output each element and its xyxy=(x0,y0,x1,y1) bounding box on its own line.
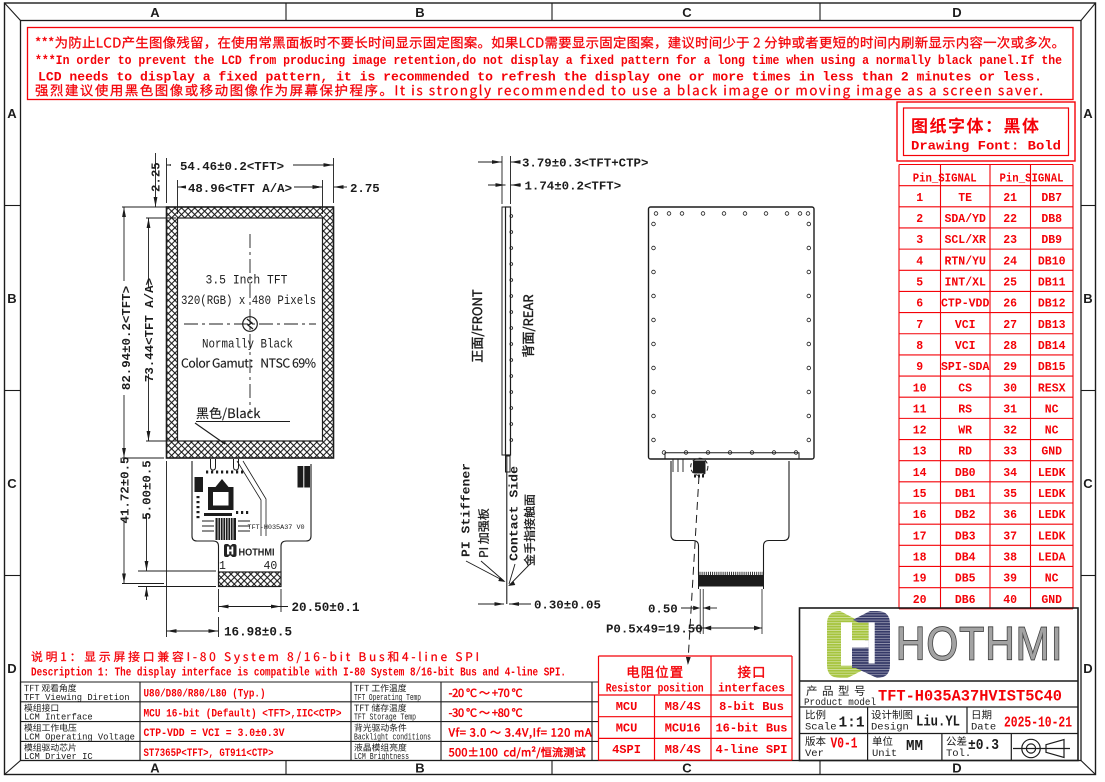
svg-text:26: 26 xyxy=(1003,298,1017,311)
svg-text:32: 32 xyxy=(1003,425,1017,438)
svg-text:16.98±0.5: 16.98±0.5 xyxy=(224,626,292,640)
svg-text:DB1: DB1 xyxy=(955,488,976,501)
svg-text:8: 8 xyxy=(916,340,923,353)
svg-text:A: A xyxy=(150,761,160,776)
svg-text:6: 6 xyxy=(916,298,923,311)
svg-text:22: 22 xyxy=(1003,213,1017,226)
svg-text:Resistor position: Resistor position xyxy=(606,682,704,696)
svg-text:TE: TE xyxy=(958,192,972,205)
svg-text:RS: RS xyxy=(958,403,972,416)
svg-text:17: 17 xyxy=(913,530,927,543)
svg-text:HOTHMI: HOTHMI xyxy=(239,547,275,559)
svg-text:NC: NC xyxy=(1045,403,1059,416)
svg-text:Ver: Ver xyxy=(805,748,824,760)
svg-text:4-line SPI: 4-line SPI xyxy=(715,743,787,757)
svg-text:TFT Viewing Diretion: TFT Viewing Diretion xyxy=(24,693,130,703)
svg-text:M8/4S: M8/4S xyxy=(665,700,701,714)
svg-text:LEDA: LEDA xyxy=(1038,552,1066,565)
svg-text:DB11: DB11 xyxy=(1038,276,1066,289)
svg-text:DB5: DB5 xyxy=(955,573,976,586)
svg-text:Normally Black: Normally Black xyxy=(202,337,293,352)
svg-text:39: 39 xyxy=(1003,573,1017,586)
svg-text:3.5 Inch TFT: 3.5 Inch TFT xyxy=(206,273,288,288)
svg-text:RESX: RESX xyxy=(1038,382,1066,395)
svg-text:Drawing Font: Bold: Drawing Font: Bold xyxy=(911,139,1061,154)
svg-text:WR: WR xyxy=(958,425,972,438)
svg-text:GND: GND xyxy=(1041,594,1062,607)
svg-text:MM: MM xyxy=(906,739,923,755)
svg-text:±0.3: ±0.3 xyxy=(968,737,999,754)
svg-text:RD: RD xyxy=(958,446,972,459)
svg-text:P0.5x49=19.50: P0.5x49=19.50 xyxy=(606,623,703,637)
svg-text:DB2: DB2 xyxy=(955,509,976,522)
svg-text:34: 34 xyxy=(1003,467,1017,480)
svg-text:MCU: MCU xyxy=(616,700,638,714)
svg-text:2025-10-21: 2025-10-21 xyxy=(1004,716,1072,732)
svg-text:Backlight conditions: Backlight conditions xyxy=(354,732,431,742)
svg-text:LEDK: LEDK xyxy=(1038,509,1066,522)
svg-text:21: 21 xyxy=(1003,192,1017,205)
svg-text:33: 33 xyxy=(1003,446,1017,459)
svg-text:3: 3 xyxy=(916,234,923,247)
svg-text:interfaces: interfaces xyxy=(718,682,785,696)
svg-text:C: C xyxy=(7,476,17,491)
svg-text:35: 35 xyxy=(1003,488,1017,501)
svg-text:DB15: DB15 xyxy=(1038,361,1066,374)
svg-text:M8/4S: M8/4S xyxy=(665,743,701,757)
svg-text:40: 40 xyxy=(1003,594,1017,607)
svg-text:5: 5 xyxy=(916,276,923,289)
svg-text:DB10: DB10 xyxy=(1038,255,1066,268)
svg-text:29: 29 xyxy=(1003,361,1017,374)
svg-text:73.44<TFT A/A>: 73.44<TFT A/A> xyxy=(143,278,157,382)
svg-text:NC: NC xyxy=(1045,573,1059,586)
svg-text:13: 13 xyxy=(913,446,927,459)
svg-text:RTN/YU: RTN/YU xyxy=(944,255,986,268)
svg-text:Liu.YL: Liu.YL xyxy=(916,715,960,731)
svg-text:11: 11 xyxy=(913,403,927,416)
svg-text:40: 40 xyxy=(264,560,278,573)
svg-text:82.94±0.2<TFT>: 82.94±0.2<TFT> xyxy=(120,286,134,390)
svg-text:ST7365P<TFT>, GT911<CTP>: ST7365P<TFT>, GT911<CTP> xyxy=(144,748,274,760)
svg-text:Date: Date xyxy=(971,722,996,734)
svg-text:20.50±0.1: 20.50±0.1 xyxy=(292,601,360,615)
svg-text:9: 9 xyxy=(916,361,923,374)
svg-text:D: D xyxy=(952,5,961,20)
svg-text:36: 36 xyxy=(1003,509,1017,522)
svg-text:LEDK: LEDK xyxy=(1038,488,1066,501)
svg-text:48.96<TFT A/A>: 48.96<TFT A/A> xyxy=(188,182,292,196)
svg-text:D: D xyxy=(7,661,16,676)
svg-text:5.00±0.5: 5.00±0.5 xyxy=(141,460,155,520)
svg-text:4SPI: 4SPI xyxy=(612,743,641,757)
svg-text:12: 12 xyxy=(913,425,927,438)
svg-text:C: C xyxy=(1083,476,1093,491)
svg-text:D: D xyxy=(1083,661,1092,676)
svg-text:25: 25 xyxy=(1003,276,1017,289)
svg-text:B: B xyxy=(415,5,424,20)
svg-text:A: A xyxy=(7,106,17,121)
svg-text:A: A xyxy=(1083,106,1093,121)
svg-text:0.30±0.05: 0.30±0.05 xyxy=(534,598,601,612)
svg-text:LCM Interface: LCM Interface xyxy=(24,713,93,723)
svg-text:INT/XL: INT/XL xyxy=(944,276,986,289)
svg-text:LEDK: LEDK xyxy=(1038,467,1066,480)
svg-text:DB4: DB4 xyxy=(955,552,976,565)
svg-text:Product model: Product model xyxy=(804,697,876,709)
svg-text:1.74±0.2<TFT>: 1.74±0.2<TFT> xyxy=(525,180,622,194)
svg-text:SDA/YD: SDA/YD xyxy=(944,213,986,226)
svg-text:24: 24 xyxy=(1003,255,1017,268)
svg-text:2: 2 xyxy=(916,213,923,226)
svg-text:3.79±0.3<TFT+CTP>: 3.79±0.3<TFT+CTP> xyxy=(522,157,648,171)
svg-text:DB12: DB12 xyxy=(1038,298,1066,311)
svg-text:DB7: DB7 xyxy=(1041,192,1062,205)
svg-text:LCD needs to display a fixed p: LCD needs to display a fixed pattern, it… xyxy=(38,71,1042,85)
svg-text:19: 19 xyxy=(913,573,927,586)
svg-text:Contact Side: Contact Side xyxy=(508,466,522,561)
svg-text:10: 10 xyxy=(913,382,927,395)
svg-text:MCU: MCU xyxy=(616,722,638,736)
svg-text:37: 37 xyxy=(1003,530,1017,543)
svg-text:CTP-VDD = VCI = 3.0±0.3V: CTP-VDD = VCI = 3.0±0.3V xyxy=(144,728,285,740)
svg-text:DB13: DB13 xyxy=(1038,319,1066,332)
svg-text:41.72±0.5: 41.72±0.5 xyxy=(119,457,133,524)
svg-text:U80/D80/R80/L80 (Typ.): U80/D80/R80/L80 (Typ.) xyxy=(144,689,266,701)
svg-text:1:1: 1:1 xyxy=(838,716,864,732)
svg-text:Description 1: The display int: Description 1: The display interface is … xyxy=(31,667,566,680)
svg-text:38: 38 xyxy=(1003,552,1017,565)
svg-text:LCM Driver IC: LCM Driver IC xyxy=(24,752,93,762)
svg-text:LCM Operating Voltage: LCM Operating Voltage xyxy=(24,732,135,742)
svg-text:2.25: 2.25 xyxy=(150,162,164,192)
svg-text:DB14: DB14 xyxy=(1038,340,1066,353)
svg-text:LCM Brightness: LCM Brightness xyxy=(354,752,409,762)
svg-text:SCL/XR: SCL/XR xyxy=(944,234,986,247)
svg-text:DB9: DB9 xyxy=(1041,234,1062,247)
svg-text:20: 20 xyxy=(913,594,927,607)
svg-text:4: 4 xyxy=(916,255,923,268)
svg-text:DB0: DB0 xyxy=(955,467,976,480)
svg-text:320(RGB) x 480 Pixels: 320(RGB) x 480 Pixels xyxy=(181,293,316,308)
svg-text:15: 15 xyxy=(913,488,927,501)
svg-text:1: 1 xyxy=(916,192,923,205)
svg-text:Unit: Unit xyxy=(872,748,897,760)
svg-text:***In order to prevent the LCD: ***In order to prevent the LCD from prod… xyxy=(35,54,1062,68)
svg-text:C: C xyxy=(682,5,692,20)
svg-text:DB6: DB6 xyxy=(955,594,976,607)
svg-text:V0-1: V0-1 xyxy=(831,737,858,753)
svg-text:14: 14 xyxy=(913,467,927,480)
svg-text:54.46±0.2<TFT>: 54.46±0.2<TFT> xyxy=(180,160,284,174)
svg-text:MCU 16-bit (Default) <TFT>,IIC: MCU 16-bit (Default) <TFT>,IIC<CTP> xyxy=(144,708,342,720)
svg-text:TFT-H035A37HVIST5C40: TFT-H035A37HVIST5C40 xyxy=(878,688,1062,706)
svg-text:31: 31 xyxy=(1003,403,1017,416)
svg-text:TFT Storage Temp: TFT Storage Temp xyxy=(354,713,416,723)
svg-text:CTP-VDD: CTP-VDD xyxy=(941,298,989,311)
svg-text:TFT Operating Temp: TFT Operating Temp xyxy=(354,693,421,703)
svg-text:Pin_SIGNAL: Pin_SIGNAL xyxy=(1000,173,1064,186)
svg-text:B: B xyxy=(7,291,16,306)
svg-text:C: C xyxy=(682,761,692,776)
svg-text:CS: CS xyxy=(958,382,972,395)
svg-text:TFT-H035A37 V0: TFT-H035A37 V0 xyxy=(248,524,305,532)
svg-text:28: 28 xyxy=(1003,340,1017,353)
svg-text:DB8: DB8 xyxy=(1041,213,1062,226)
svg-text:DB3: DB3 xyxy=(955,530,976,543)
svg-text:8-bit Bus: 8-bit Bus xyxy=(719,700,784,714)
svg-text:NC: NC xyxy=(1045,425,1059,438)
svg-text:18: 18 xyxy=(913,552,927,565)
svg-text:1: 1 xyxy=(219,560,226,573)
svg-text:A: A xyxy=(150,5,160,20)
svg-text:PI Stiffener: PI Stiffener xyxy=(460,463,474,557)
svg-text:7: 7 xyxy=(916,319,923,332)
svg-text:16: 16 xyxy=(913,509,927,522)
svg-text:MCU16: MCU16 xyxy=(665,722,701,736)
svg-text:Design: Design xyxy=(871,722,909,734)
svg-text:HOTHMI: HOTHMI xyxy=(896,619,1064,670)
svg-text:Scale: Scale xyxy=(805,722,837,734)
svg-text:VCI: VCI xyxy=(955,319,976,332)
svg-text:SPI-SDA: SPI-SDA xyxy=(941,361,989,374)
svg-text:VCI: VCI xyxy=(955,340,976,353)
svg-text:30: 30 xyxy=(1003,382,1017,395)
svg-text:23: 23 xyxy=(1003,234,1017,247)
svg-text:LEDK: LEDK xyxy=(1038,530,1066,543)
svg-text:27: 27 xyxy=(1003,319,1017,332)
svg-text:GND: GND xyxy=(1041,446,1062,459)
svg-text:D: D xyxy=(952,761,961,776)
svg-text:16-bit Bus: 16-bit Bus xyxy=(715,722,787,736)
svg-text:2.75: 2.75 xyxy=(350,182,380,196)
svg-text:B: B xyxy=(415,761,424,776)
svg-text:B: B xyxy=(1083,291,1092,306)
svg-text:0.50: 0.50 xyxy=(648,603,678,617)
svg-text:Pin_SIGNAL: Pin_SIGNAL xyxy=(913,173,977,186)
